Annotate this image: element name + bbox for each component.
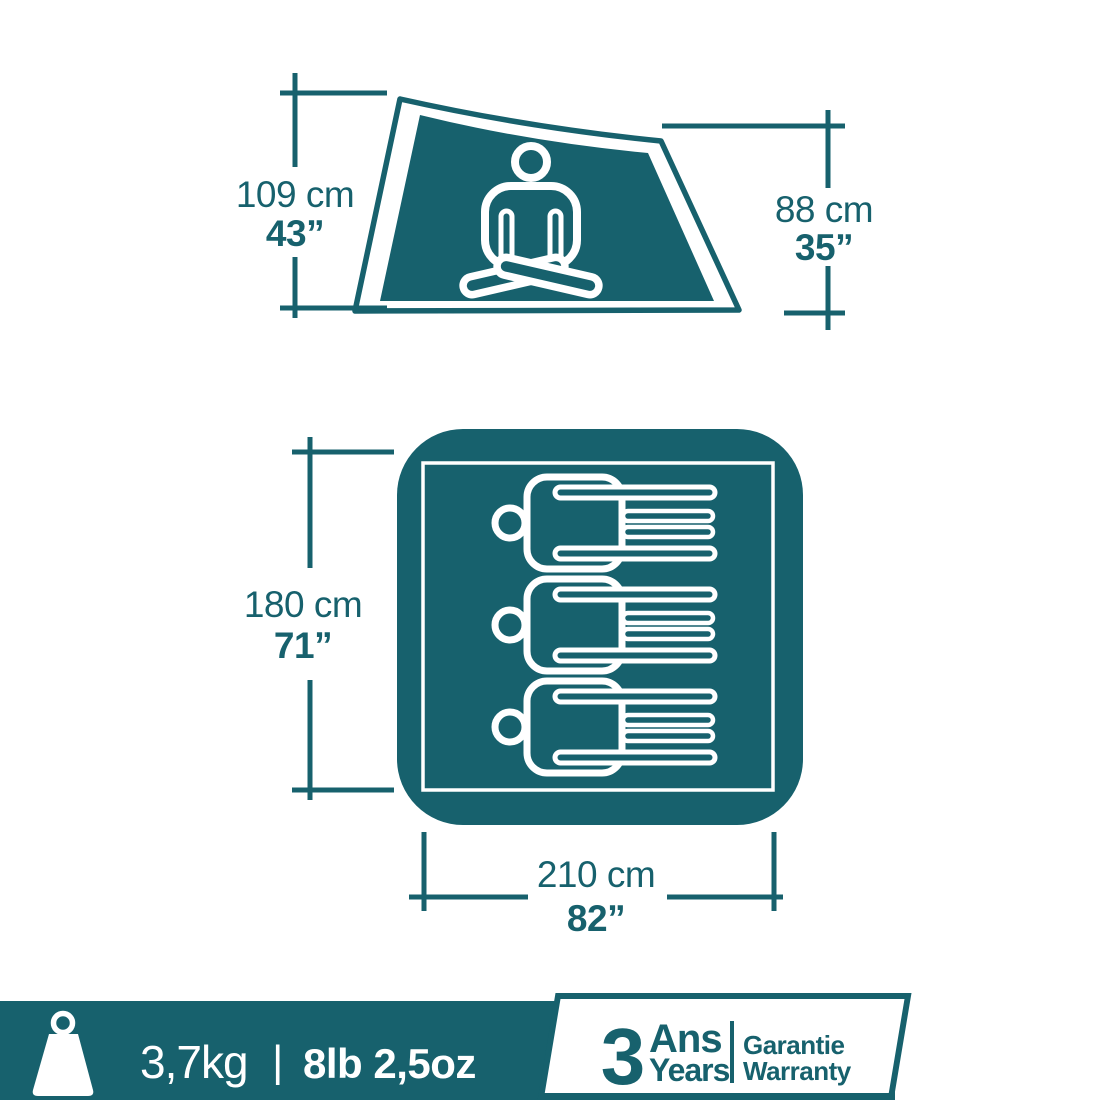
warranty-years-number: 3	[601, 1012, 644, 1100]
height-left-cm: 109 cm	[236, 174, 354, 215]
width-inch: 82”	[567, 898, 625, 939]
height-left-inch: 43”	[266, 213, 324, 254]
tent-side-view: 109 cm 43” 88 cm 35”	[236, 73, 873, 330]
warranty-label-en: Years	[649, 1052, 730, 1088]
warranty-badge: 3 Ans Years Garantie Warranty	[541, 996, 908, 1100]
weight-metric-label: 3,7kg	[140, 1036, 248, 1088]
diagram-svg: 109 cm 43” 88 cm 35” 180 cm 71”	[0, 0, 1100, 1100]
weight-imperial-label: 8lb 2,5oz	[303, 1040, 476, 1087]
height-right-inch: 35”	[795, 227, 853, 268]
footer-bar: 3,7kg | 8lb 2,5oz 3 Ans Years Garantie W…	[0, 996, 908, 1100]
weight-divider: |	[272, 1037, 283, 1086]
sleeping-person-icon-3	[495, 681, 715, 773]
sleeping-person-icon-1	[495, 477, 715, 569]
sleeping-person-icon-2	[495, 579, 715, 671]
height-right-cm: 88 cm	[775, 189, 873, 230]
width-cm: 210 cm	[537, 854, 655, 895]
tent-spec-infographic: 109 cm 43” 88 cm 35” 180 cm 71”	[0, 0, 1100, 1100]
length-cm: 180 cm	[244, 584, 362, 625]
length-inch: 71”	[274, 625, 332, 666]
dimension-length: 180 cm 71”	[244, 437, 394, 800]
tent-floor-view: 180 cm 71” 210 cm 82”	[244, 429, 803, 939]
guarantee-label-en: Warranty	[743, 1056, 852, 1086]
dimension-width: 210 cm 82”	[409, 832, 783, 939]
